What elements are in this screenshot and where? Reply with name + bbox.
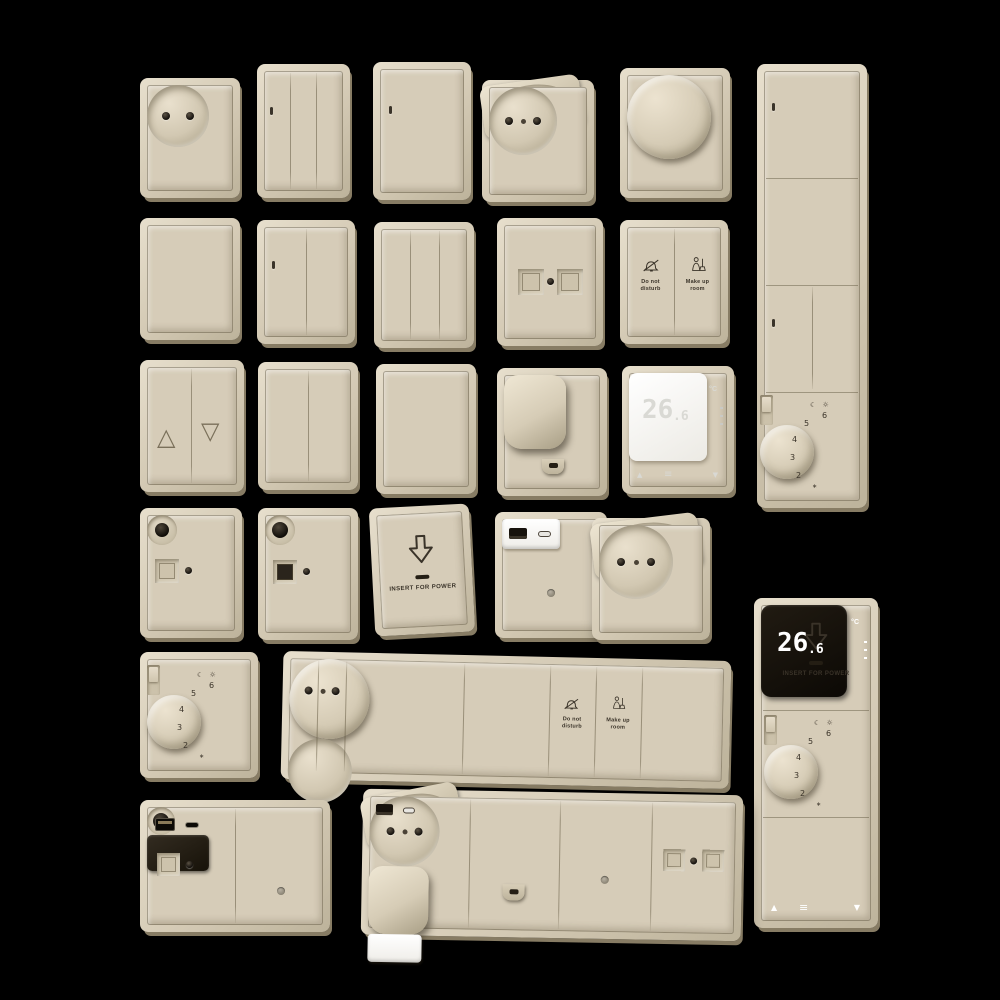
dnd-label: Do not disturb bbox=[550, 716, 594, 730]
product-collage: ☾ ☼ 6 5 4 3 2 ∗ bbox=[0, 0, 1000, 1000]
plate-face bbox=[504, 225, 596, 339]
dial-number: 4 bbox=[796, 753, 801, 762]
unit-label: °C bbox=[709, 386, 717, 393]
data-port-icon bbox=[157, 853, 180, 876]
cable-slot-icon bbox=[509, 889, 518, 894]
module-divider bbox=[763, 710, 869, 711]
blind-control-switch: △ ▽ bbox=[140, 360, 244, 492]
blind-up-icon: △ bbox=[157, 425, 175, 449]
vertical-panel-3-module: INSERT FOR POWER ☾ ☼ 6 5 4 3 2 ∗ 26 .6 °… bbox=[754, 598, 878, 928]
rotary-dimmer bbox=[620, 68, 730, 198]
slider-handle bbox=[766, 717, 775, 732]
plate-face bbox=[147, 85, 233, 191]
frost-icon: ∗ bbox=[816, 801, 821, 808]
center-dot-icon bbox=[521, 119, 526, 124]
indicator-lens bbox=[270, 107, 273, 115]
center-dot-icon bbox=[303, 568, 310, 575]
tv-coax-outlet bbox=[140, 508, 242, 638]
plate-face: Do not disturb Make up room bbox=[288, 658, 724, 782]
data-port-icon bbox=[557, 269, 583, 295]
flip-lid-socket bbox=[592, 518, 710, 640]
switch-3-gang-narrow bbox=[257, 64, 350, 198]
plate-face: ☾ ☼ 6 5 4 3 2 ∗ bbox=[764, 71, 860, 501]
coax-bore-icon bbox=[155, 523, 169, 537]
plate-face: Do not disturb Make up room bbox=[627, 227, 721, 337]
socket-recess bbox=[287, 738, 352, 803]
switch-2-gang bbox=[258, 362, 358, 490]
plate-face bbox=[599, 525, 703, 633]
mur-label: Make up room bbox=[596, 717, 640, 731]
coax-connector bbox=[147, 515, 177, 545]
usb-c-port-icon bbox=[185, 822, 199, 828]
data-port-icon bbox=[155, 559, 179, 583]
temp-up-icon: ▲ bbox=[637, 472, 642, 479]
cable-outlet bbox=[497, 368, 607, 496]
plate-face bbox=[380, 69, 464, 193]
temperature-value: 26 bbox=[777, 630, 808, 656]
day-night-icons: ☾ ☼ bbox=[814, 719, 835, 727]
thermostat-dial-module: ☾ ☼ 6 5 4 3 2 ∗ bbox=[147, 665, 251, 765]
center-dot-icon bbox=[634, 560, 639, 565]
plate-face: △ ▽ bbox=[147, 367, 237, 485]
thermostat-slider bbox=[760, 395, 773, 425]
rocker-divider bbox=[290, 73, 291, 189]
side-ticks-icon bbox=[864, 641, 867, 663]
insert-for-power-label: INSERT FOR POWER bbox=[383, 583, 463, 593]
pin-hole-icon bbox=[162, 112, 170, 120]
module-divider bbox=[462, 664, 465, 774]
socket-recess bbox=[599, 525, 673, 599]
card-slot bbox=[809, 661, 823, 665]
insert-card-arrow-icon bbox=[402, 530, 440, 568]
insert-for-power-label: INSERT FOR POWER bbox=[764, 671, 868, 677]
screw-icon bbox=[547, 589, 555, 597]
frost-icon: ∗ bbox=[199, 753, 204, 760]
coax-bore-icon bbox=[272, 522, 288, 538]
mur-label: Make up room bbox=[676, 279, 719, 292]
dial-number: 3 bbox=[794, 771, 799, 780]
module-divider bbox=[763, 817, 869, 818]
dial-number: 6 bbox=[826, 729, 831, 738]
temp-down-icon: ▼ bbox=[854, 904, 860, 912]
plate-face bbox=[368, 796, 736, 934]
indicator-lens bbox=[772, 103, 775, 111]
temp-up-icon: ▲ bbox=[771, 904, 777, 912]
cable-hood bbox=[368, 866, 429, 935]
rocker-divider bbox=[410, 231, 411, 339]
data-port-icon bbox=[702, 850, 724, 872]
thermostat-screen: 26 .6 °C ▲ ≡ ▼ bbox=[629, 373, 707, 461]
usb-c-port-icon bbox=[538, 531, 551, 537]
module-divider bbox=[640, 668, 643, 778]
key-card-holder: INSERT FOR POWER bbox=[369, 503, 476, 636]
horizontal-panel-4-module bbox=[361, 789, 743, 942]
pin-hole-icon bbox=[617, 558, 625, 566]
pin-hole-icon bbox=[505, 117, 513, 125]
card-slot bbox=[415, 575, 429, 580]
plate-face bbox=[627, 75, 723, 191]
thermostat-knob bbox=[760, 425, 814, 479]
coax-usb-double-plate bbox=[140, 800, 330, 932]
side-ticks-icon bbox=[720, 407, 723, 427]
usb-a-port-icon bbox=[509, 528, 527, 539]
dnd-label: Do not disturb bbox=[629, 279, 672, 292]
blind-down-icon: ▽ bbox=[201, 419, 219, 443]
plate-face: 26 .6 °C ▲ ≡ ▼ bbox=[629, 373, 727, 487]
center-dot-icon bbox=[403, 829, 408, 834]
thermostat-knob bbox=[764, 745, 818, 799]
thermostat-dial-module: ☾ ☼ 6 5 4 3 2 ∗ bbox=[760, 395, 864, 495]
dial-number: 3 bbox=[177, 723, 182, 732]
module-divider bbox=[766, 285, 858, 286]
plate-face bbox=[383, 371, 469, 487]
socket-recess bbox=[147, 85, 209, 147]
dial-number: 4 bbox=[179, 705, 184, 714]
vertical-panel-4-module: ☾ ☼ 6 5 4 3 2 ∗ bbox=[757, 64, 867, 508]
plate-face: ☾ ☼ 6 5 4 3 2 ∗ bbox=[147, 659, 251, 771]
pin-hole-icon bbox=[533, 117, 541, 125]
module-divider bbox=[558, 801, 561, 929]
thermostat-dial-module: ☾ ☼ 6 5 4 3 2 ∗ bbox=[764, 715, 868, 815]
slider-handle bbox=[762, 397, 771, 412]
digital-thermostat-white: 26 .6 °C ▲ ≡ ▼ bbox=[622, 366, 734, 494]
plate-face bbox=[489, 87, 587, 195]
dial-number: 5 bbox=[191, 689, 196, 698]
plate-face bbox=[265, 369, 351, 483]
tv-coax-outlet bbox=[258, 508, 358, 640]
slider-handle bbox=[149, 667, 158, 682]
dial-number: 5 bbox=[808, 737, 813, 746]
cable-slot-icon bbox=[549, 463, 558, 468]
usb-contacts-icon bbox=[158, 821, 172, 824]
dial-number: 6 bbox=[209, 681, 214, 690]
switch-2-gang bbox=[257, 220, 355, 344]
plate-face bbox=[147, 515, 235, 631]
plate-face bbox=[381, 229, 467, 341]
switch-1-gang bbox=[373, 62, 471, 200]
plate-face bbox=[264, 71, 343, 191]
rocker-divider bbox=[308, 371, 309, 481]
menu-icon: ≡ bbox=[664, 470, 672, 480]
analog-thermostat: ☾ ☼ 6 5 4 3 2 ∗ bbox=[140, 652, 258, 778]
screw-icon bbox=[601, 876, 609, 884]
plate-face bbox=[147, 807, 323, 925]
make-up-room-maid-icon bbox=[610, 695, 626, 711]
data-port-icon bbox=[273, 560, 297, 584]
center-dot-icon bbox=[690, 857, 697, 864]
plate-face: INSERT FOR POWER ☾ ☼ 6 5 4 3 2 ∗ 26 .6 °… bbox=[761, 605, 871, 921]
center-dot-icon bbox=[186, 861, 193, 868]
center-dot-icon bbox=[185, 567, 192, 574]
usb-module bbox=[367, 934, 421, 963]
coax-connector bbox=[265, 515, 295, 545]
plate-face bbox=[264, 227, 348, 337]
rocker-divider bbox=[306, 229, 307, 335]
thermostat-slider bbox=[147, 665, 160, 695]
temperature-value: 26 bbox=[642, 397, 673, 423]
plate-face bbox=[502, 519, 600, 631]
horizontal-panel-6-module: Do not disturb Make up room bbox=[281, 651, 732, 789]
center-dot-icon bbox=[321, 689, 326, 694]
frost-icon: ∗ bbox=[812, 483, 817, 490]
plate-face bbox=[265, 515, 351, 633]
socket-recess bbox=[489, 87, 557, 155]
center-dot-icon bbox=[547, 278, 554, 285]
indicator-lens bbox=[772, 319, 775, 327]
flip-lid-socket bbox=[482, 80, 594, 202]
make-up-room-maid-icon bbox=[689, 256, 707, 274]
dimmer-knob bbox=[289, 658, 371, 740]
rocker-divider bbox=[439, 231, 440, 339]
dimmer-knob bbox=[627, 75, 711, 159]
temperature-decimal: .6 bbox=[808, 643, 824, 656]
temperature-decimal: .6 bbox=[673, 410, 689, 423]
module-divider bbox=[235, 809, 236, 923]
plate-face bbox=[147, 225, 233, 333]
rocker-divider bbox=[812, 287, 813, 389]
data-port-icon bbox=[518, 269, 544, 295]
indicator-lens bbox=[272, 261, 275, 269]
pin-hole-icon bbox=[414, 828, 422, 836]
pin-hole-icon bbox=[386, 827, 394, 835]
data-port-icon bbox=[663, 849, 685, 871]
dial-number: 2 bbox=[796, 471, 801, 480]
do-not-disturb-bell-icon bbox=[562, 696, 580, 711]
data-outlet-2-port bbox=[497, 218, 603, 346]
pin-hole-icon bbox=[186, 112, 194, 120]
dial-number: 6 bbox=[822, 411, 827, 420]
switch-1-gang bbox=[376, 364, 476, 494]
usb-a-port-icon bbox=[376, 804, 393, 815]
usb-a-port-icon bbox=[155, 818, 175, 831]
blank-plate bbox=[140, 218, 240, 340]
thermostat-slider bbox=[764, 715, 777, 745]
dnd-mur-switch: Do not disturb Make up room bbox=[620, 220, 728, 344]
dial-number: 5 bbox=[804, 419, 809, 428]
dial-number: 2 bbox=[183, 741, 188, 750]
temp-down-icon: ▼ bbox=[713, 472, 718, 479]
module-divider bbox=[766, 392, 858, 393]
unit-label: °C bbox=[851, 619, 859, 626]
module-divider bbox=[468, 800, 471, 928]
rocker-divider bbox=[316, 73, 317, 189]
dial-number: 2 bbox=[800, 789, 805, 798]
plate-face: INSERT FOR POWER bbox=[376, 511, 468, 629]
pin-hole-icon bbox=[647, 558, 655, 566]
usb-module bbox=[502, 519, 560, 549]
menu-icon: ≡ bbox=[799, 902, 808, 913]
thermostat-knob bbox=[147, 695, 201, 749]
rocker-divider bbox=[191, 369, 192, 483]
usb-c-port-icon bbox=[403, 807, 415, 813]
screw-icon bbox=[277, 887, 285, 895]
rocker-divider bbox=[674, 229, 675, 335]
switch-3-gang bbox=[374, 222, 474, 348]
indicator-lens bbox=[389, 106, 392, 114]
module-divider bbox=[650, 803, 653, 931]
dial-number: 3 bbox=[790, 453, 795, 462]
socket-unearthed bbox=[140, 78, 240, 198]
module-divider bbox=[766, 178, 858, 179]
day-night-icons: ☾ ☼ bbox=[197, 671, 218, 679]
day-night-icons: ☾ ☼ bbox=[810, 401, 831, 409]
do-not-disturb-bell-icon bbox=[641, 257, 661, 274]
dial-number: 4 bbox=[792, 435, 797, 444]
cable-hood bbox=[504, 375, 566, 449]
plate-face bbox=[504, 375, 600, 489]
